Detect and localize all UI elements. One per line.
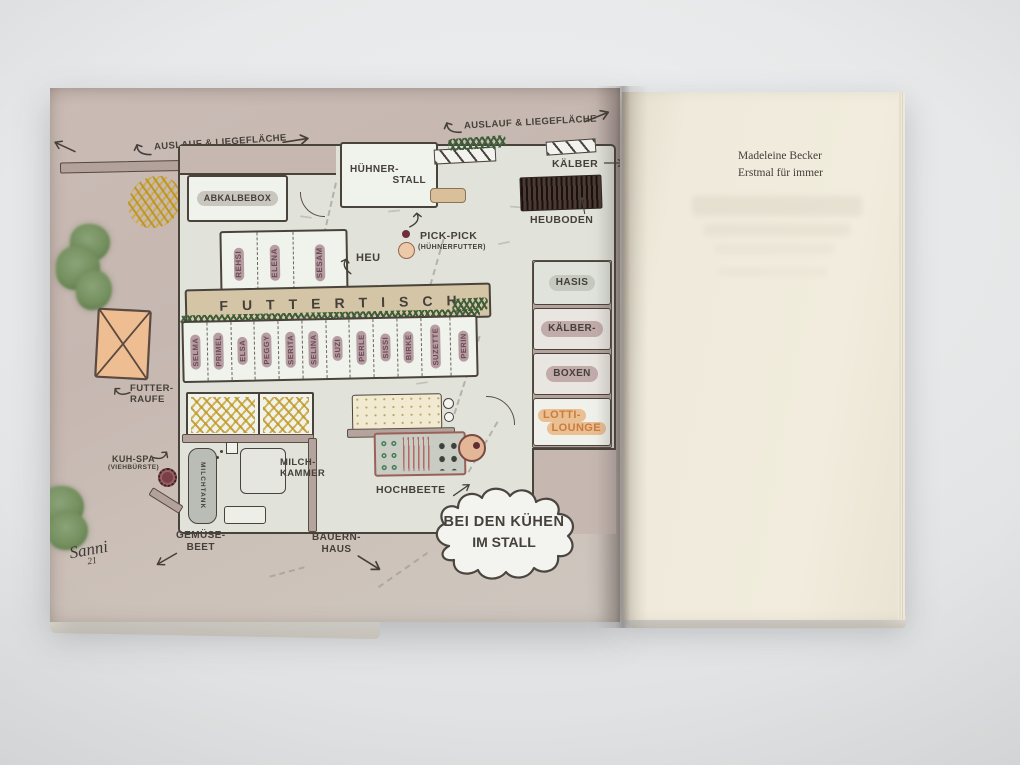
seedlings-red-icon [403, 437, 432, 471]
cloud-title-line1: BEI DEN KÜHEN [424, 514, 584, 530]
arrow-right-icon [581, 104, 617, 128]
artist-signature: Sanni 21 [68, 537, 111, 570]
page-showthrough [718, 268, 828, 276]
hedge-icon [448, 135, 507, 151]
trough-icon [430, 188, 466, 203]
room-kaelberboxen-2: BOXEN [533, 353, 611, 395]
cloud-title-line2: IM STALL [424, 534, 584, 550]
cow-brush-icon [158, 468, 177, 487]
curved-arrow-icon [404, 210, 426, 230]
bowl-icon [443, 398, 454, 409]
outside-patch [180, 146, 336, 175]
stall: REHSI [221, 232, 258, 295]
tree-icon [56, 224, 126, 316]
stall: SISSI [373, 319, 398, 377]
label-lotti-2: LOUNGE [547, 422, 606, 435]
stall: PRIMEL [207, 322, 232, 380]
stall: ELENA [257, 232, 294, 295]
label-hasis: HASIS [549, 275, 596, 291]
label-milchkammer: MILCH- KAMMER [280, 458, 325, 480]
straw-boxes [186, 392, 314, 438]
label-futterraufe: FUTTER- RAUFE [130, 384, 173, 406]
stall: SUZI [326, 320, 351, 378]
door-arc [300, 192, 325, 217]
stall: BIRKE [397, 318, 422, 376]
arrow-left-icon [50, 134, 79, 158]
stall-row-bottom: SELMA PRIMEL ELSA PEGGY SERITA SELINA SU… [181, 315, 478, 383]
equipment-box [226, 442, 238, 454]
stall: SELMA [183, 323, 208, 381]
straw-box-icon [191, 397, 255, 433]
page-showthrough [714, 244, 834, 254]
book-author: Madeleine Becker [738, 148, 822, 165]
map-title-cloud: BEI DEN KÜHEN IM STALL [424, 484, 584, 584]
stall: PERLE [350, 319, 375, 377]
futterraufe-icon [93, 307, 153, 382]
room-lotti-lounge: LOTTI- LOUNGE [533, 398, 611, 446]
milk-tank: MILCHTANK [188, 448, 217, 524]
seedlings-dark-icon [433, 436, 462, 470]
curved-arrow-icon [131, 140, 153, 159]
label-heuboden: HEUBODEN [530, 214, 593, 226]
dot [220, 450, 223, 453]
map-page: AUSLAUF & LIEGEFLÄCHE AUSLAUF & LIEGEFLÄ… [50, 88, 620, 622]
rooms-column: HASIS KÄLBER- BOXEN LOTTI- LOUNGE [532, 260, 612, 448]
label-pickpick: PICK-PICK [420, 230, 477, 242]
label-kaelber-line: KÄLBER- [541, 321, 603, 337]
page-edge-stack [898, 92, 905, 620]
room-huehnerstall: HÜHNER- STALL [340, 142, 438, 208]
book-photo: AUSLAUF & LIEGEFLÄCHE AUSLAUF & LIEGEFLÄ… [0, 0, 1020, 765]
door-arc [486, 396, 515, 425]
pickpick-dot-icon [402, 230, 410, 238]
page-showthrough [704, 224, 850, 236]
stall: PERIN [450, 317, 476, 376]
page-showthrough [692, 196, 862, 216]
wall [182, 434, 314, 443]
heuboden-hay-icon [519, 175, 602, 212]
arrow-down-right-icon [353, 550, 388, 578]
label-heu: HEU [356, 252, 380, 265]
arrow-right-icon [603, 157, 620, 169]
stall: ELSA [231, 322, 256, 380]
arrow-down-left-icon [149, 547, 181, 572]
label-bauernhaus: BAUERN- HAUS [312, 532, 361, 555]
stall: SERITA [278, 321, 303, 379]
book-title: Erstmal für immer [738, 165, 823, 182]
label-gemuesebeet: GEMÜSE- BEET [176, 530, 225, 553]
stall: PEGGY [255, 321, 280, 379]
label-huehnerstall-2: STALL [393, 175, 436, 187]
room-kaelberboxen-1: KÄLBER- [533, 308, 611, 350]
label-milchtank: MILCHTANK [199, 462, 206, 509]
label-auslauf-right: AUSLAUF & LIEGEFLÄCHE [464, 115, 597, 133]
straw-pile-icon [128, 176, 180, 228]
pickpick-ring-icon [398, 242, 415, 259]
straw-box-icon [263, 397, 309, 433]
hochbeete-bed [374, 431, 467, 477]
feeder-dish-icon [458, 434, 486, 462]
bowl-icon [444, 412, 454, 422]
room-hasis: HASIS [533, 261, 611, 305]
wall [308, 438, 317, 532]
title-page: Madeleine Becker Erstmal für immer [622, 92, 905, 620]
garland-icon [452, 297, 489, 312]
barn-area: ABKALBEBOX HÜHNER- STALL KÄLBER HEUBODEN [178, 144, 616, 534]
stall: SELINA [302, 320, 327, 378]
dot [216, 456, 219, 459]
label-kaelber: KÄLBER [552, 154, 620, 172]
sand-bed [352, 393, 443, 431]
label-lotti-1: LOTTI- [538, 409, 586, 422]
curved-arrow-icon [441, 118, 464, 138]
label-huehnerstall-1: HÜHNER- [342, 164, 399, 176]
equipment-box [224, 506, 266, 524]
room-abkalbebox: ABKALBEBOX [187, 175, 288, 222]
stall: SUZETTE [421, 317, 452, 376]
seedlings-green-icon [379, 437, 402, 471]
label-pickpick-sub: (HÜHNERFUTTER) [418, 244, 486, 252]
label-boxen: BOXEN [546, 366, 598, 382]
label-abkalbebox: ABKALBEBOX [197, 191, 279, 205]
